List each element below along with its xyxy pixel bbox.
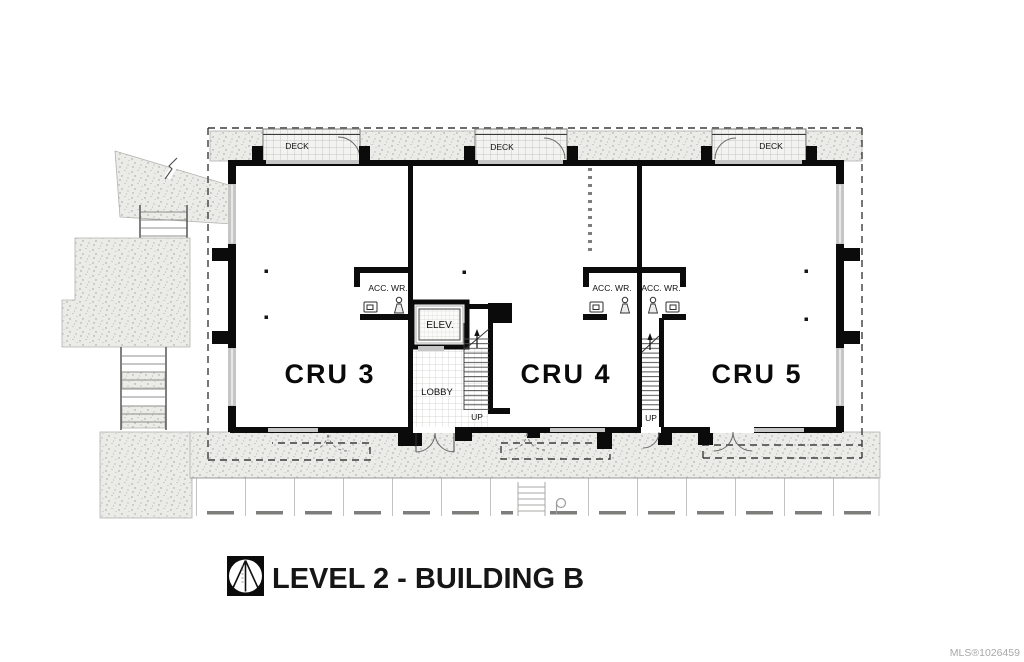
- stair-up-arrow: [474, 329, 479, 336]
- window-glazing: [228, 160, 844, 432]
- unit-label-cru4: CRU 4: [520, 359, 611, 389]
- site-hardscape: [62, 131, 880, 518]
- deck-1-label: DECK: [285, 141, 309, 151]
- acc-wr-1: [354, 267, 413, 320]
- floor-plan-page: DECK DECK DECK CRU 3 CRU 4 CRU 5 ELEV. L…: [0, 0, 1024, 662]
- exterior-stair-lower: [121, 347, 166, 430]
- up-label-1: UP: [471, 412, 483, 422]
- stair-2: [642, 333, 659, 412]
- acc-wr-2-label: ACC. WR.: [592, 283, 631, 293]
- washrooms: [354, 267, 686, 320]
- decks: [263, 129, 806, 161]
- overhang-dashed-boundary: [208, 128, 862, 460]
- architect-logo-icon: [227, 556, 264, 596]
- acc-wr-3-label: ACC. WR.: [641, 283, 680, 293]
- deck-2: [475, 129, 567, 161]
- elevator-label: ELEV.: [426, 320, 453, 331]
- drawing-title: LEVEL 2 - BUILDING B: [272, 563, 584, 595]
- up-label-2: UP: [645, 413, 657, 423]
- plan-labels: DECK DECK DECK CRU 3 CRU 4 CRU 5 ELEV. L…: [284, 141, 802, 423]
- lobby-label: LOBBY: [421, 387, 453, 398]
- columns: [265, 270, 809, 322]
- deck-1: [263, 129, 360, 161]
- walls: [212, 146, 860, 449]
- walkway-band: [190, 432, 880, 478]
- terrace-block: [62, 238, 190, 347]
- acc-wr-2-3: [583, 267, 686, 320]
- parking-row: [190, 478, 879, 516]
- stair-up-arrow: [647, 333, 652, 340]
- floor-plan-drawing: DECK DECK DECK CRU 3 CRU 4 CRU 5 ELEV. L…: [0, 0, 1024, 662]
- crosswalk-icon: [518, 482, 545, 516]
- title-block: LEVEL 2 - BUILDING B: [227, 556, 584, 596]
- walkway-left-strip: [100, 432, 192, 518]
- deck-3-label: DECK: [759, 141, 783, 151]
- unit-label-cru3: CRU 3: [284, 359, 375, 389]
- unit-label-cru5: CRU 5: [711, 359, 802, 389]
- demising-wall-cru3: [408, 166, 413, 427]
- acc-wr-1-label: ACC. WR.: [368, 283, 407, 293]
- mls-watermark: MLS®1026459: [950, 647, 1020, 659]
- deck-2-label: DECK: [490, 142, 514, 152]
- elevator-door-sill: [418, 346, 444, 351]
